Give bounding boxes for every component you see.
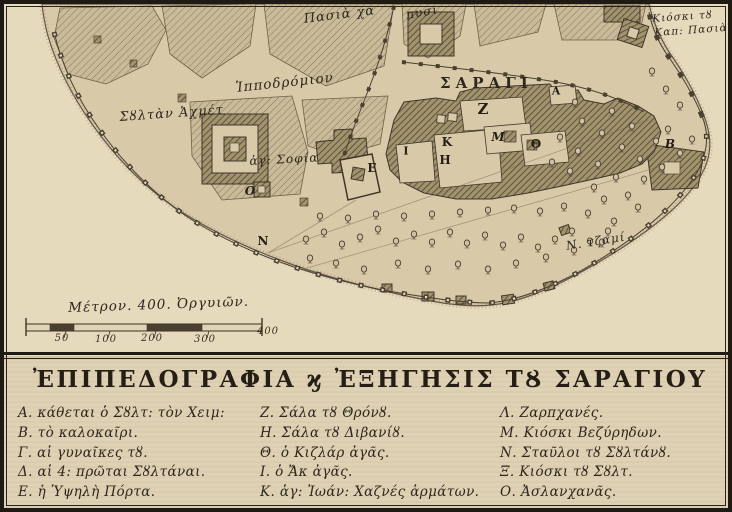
legend-item-E: Ε. ἡ Ὑψηλὴ Πόρτα. <box>18 483 225 503</box>
legend-item-H: Η. Σάλα τȣ Διβανίȣ. <box>260 424 479 444</box>
map-legend-divider-thin <box>4 358 732 359</box>
map-letter-E: Ε <box>367 161 376 175</box>
legend-item-B: Β. τὸ καλοκαῖρι. <box>18 424 225 444</box>
map-letter-H: Η <box>439 153 450 167</box>
label-saragi: ΣΑΡΑΓΙ <box>440 74 533 92</box>
legend-panel: ἘΠΙΠΕΔΟΓΡΑΦΙΑ ϗ ἘΞΗΓΗΣΙΣ ΤȢ ΣΑΡΑΓΙΟΥ Α. … <box>4 360 732 508</box>
map-letter-Theta: Θ <box>531 137 541 151</box>
map-letter-I: Ι <box>403 145 408 158</box>
legend-item-K: Κ. ἁγ: Ἰωάν: Χαζνές ἁρμάτων. <box>260 483 479 503</box>
scale-tick-200: 200 <box>141 333 163 344</box>
map-letter-Z: Ζ <box>478 100 489 118</box>
scale-tick-50: 50 <box>55 333 70 344</box>
legend-item-A: Α. κάθεται ὁ Σȣλτ: τὸν Χειμ: <box>18 404 225 424</box>
map-letter-M: Μ <box>491 130 504 144</box>
map-letter-A: Α <box>552 85 561 98</box>
legend-item-Theta: Θ. ὁ Κιζλάρ ἀγᾶς. <box>260 444 479 464</box>
scale-tick-100: 100 <box>95 334 117 345</box>
map-letter-O: Ο <box>245 184 255 198</box>
map-letter-K: Κ <box>442 135 452 149</box>
legend-item-L: Λ. Ζαρπχανές. <box>500 404 671 424</box>
scale-tick-400: 400 <box>257 326 279 337</box>
legend-column-2: Ζ. Σάλα τȣ Θρόνȣ. Η. Σάλα τȣ Διβανίȣ. Θ.… <box>260 404 479 503</box>
legend-item-G: Γ. αἱ γυναῖκες τȣ. <box>18 444 225 464</box>
legend-item-O: Ο. Ἀσλανχανᾶς. <box>500 483 671 503</box>
legend-item-Z: Ζ. Σάλα τȣ Θρόνȣ. <box>260 404 479 424</box>
legend-item-I: Ι. ὁ Ἄκ ἀγᾶς. <box>260 463 479 483</box>
legend-item-Xi: Ξ. Κιόσκι τȣ Σȣλτ. <box>500 463 671 483</box>
engraved-map-page: Πασιὰ χα πυσι Ἱπποδρόμιον Σȣλτὰν Ἀχμέτ ἁ… <box>0 0 732 512</box>
legend-item-N: Ν. Σταῦλοι τȣ Σȣλτάνȣ. <box>500 444 671 464</box>
legend-item-M: Μ. Κιόσκι Βεζύρηδων. <box>500 424 671 444</box>
legend-column-1: Α. κάθεται ὁ Σȣλτ: τὸν Χειμ: Β. τὸ καλοκ… <box>18 404 225 503</box>
legend-column-3: Λ. Ζαρπχανές. Μ. Κιόσκι Βεζύρηδων. Ν. Στ… <box>500 404 671 503</box>
map-letter-N: Ν <box>258 234 269 248</box>
legend-item-D: Δ. αἱ 4: πρῶται Σȣλτάναι. <box>18 463 225 483</box>
map-legend-divider-thick <box>4 352 732 355</box>
legend-title: ἘΠΙΠΕΔΟΓΡΑΦΙΑ ϗ ἘΞΗΓΗΣΙΣ ΤȢ ΣΑΡΑΓΙΟΥ <box>4 366 732 393</box>
scale-tick-300: 300 <box>194 334 216 345</box>
map-letter-B: Β <box>665 137 675 151</box>
